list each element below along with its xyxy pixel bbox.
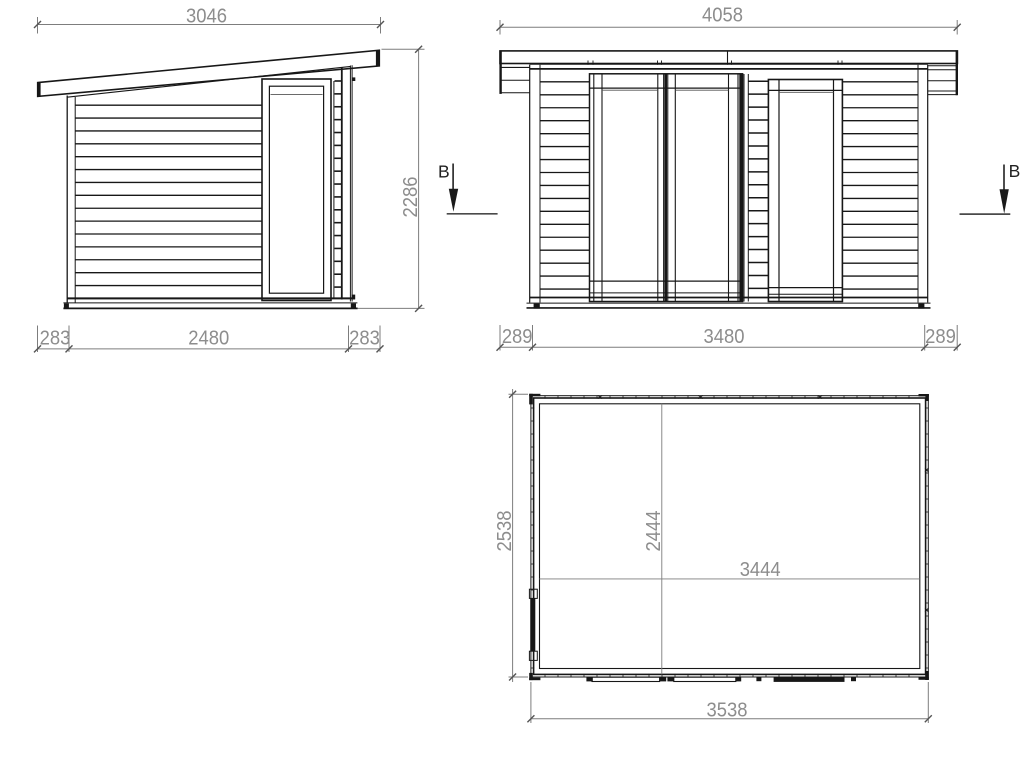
svg-text:2286: 2286 [400, 177, 422, 218]
svg-text:3538: 3538 [707, 699, 748, 721]
svg-text:B: B [438, 162, 450, 182]
svg-text:3480: 3480 [704, 326, 745, 348]
svg-text:4058: 4058 [702, 5, 743, 27]
svg-text:289: 289 [925, 326, 956, 348]
svg-text:283: 283 [40, 328, 71, 350]
svg-text:3444: 3444 [740, 559, 781, 581]
svg-text:289: 289 [502, 326, 533, 348]
svg-text:2444: 2444 [643, 511, 665, 552]
svg-text:283: 283 [349, 328, 380, 350]
svg-text:B: B [1009, 161, 1021, 181]
svg-text:2538: 2538 [494, 511, 516, 552]
svg-text:3046: 3046 [186, 5, 227, 27]
svg-text:2480: 2480 [188, 328, 229, 350]
